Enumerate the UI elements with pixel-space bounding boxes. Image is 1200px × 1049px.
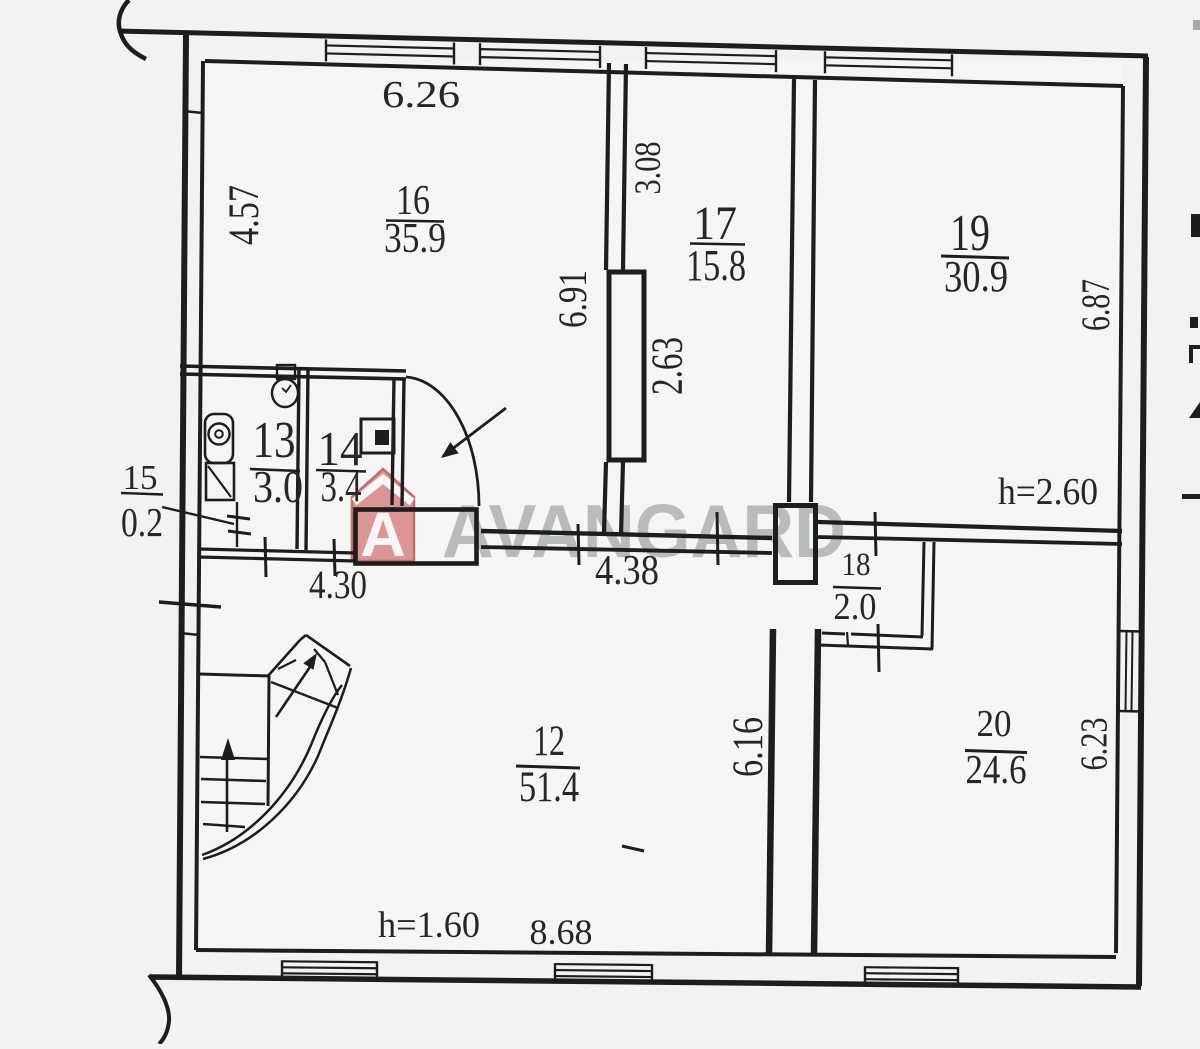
- svg-text:0.2: 0.2: [121, 499, 163, 545]
- svg-text:6.23: 6.23: [1073, 718, 1115, 771]
- svg-text:15: 15: [123, 458, 158, 497]
- svg-text:3.0: 3.0: [253, 461, 303, 512]
- svg-text:6.16: 6.16: [725, 717, 772, 777]
- svg-text:4.30: 4.30: [309, 562, 367, 607]
- svg-text:6.87: 6.87: [1073, 279, 1118, 331]
- svg-text:4.38: 4.38: [595, 548, 659, 594]
- svg-text:8.68: 8.68: [530, 912, 593, 952]
- svg-text:h=2.60: h=2.60: [998, 471, 1098, 513]
- svg-text:18: 18: [842, 547, 871, 583]
- svg-text:6.91: 6.91: [550, 270, 595, 328]
- svg-text:3.4: 3.4: [321, 464, 362, 511]
- svg-text:15.8: 15.8: [686, 241, 746, 290]
- svg-text:51.4: 51.4: [519, 764, 579, 811]
- svg-text:24.6: 24.6: [966, 746, 1027, 792]
- svg-text:h=1.60: h=1.60: [378, 905, 480, 946]
- svg-text:4.57: 4.57: [221, 185, 268, 245]
- svg-text:35.9: 35.9: [384, 216, 446, 262]
- svg-text:20: 20: [977, 703, 1012, 745]
- svg-text:3.08: 3.08: [628, 142, 669, 195]
- svg-text:30.9: 30.9: [944, 252, 1008, 301]
- svg-text:2.0: 2.0: [834, 586, 877, 628]
- svg-text:6.26: 6.26: [382, 74, 460, 116]
- svg-text:12: 12: [533, 718, 565, 765]
- svg-text:2.63: 2.63: [642, 337, 691, 395]
